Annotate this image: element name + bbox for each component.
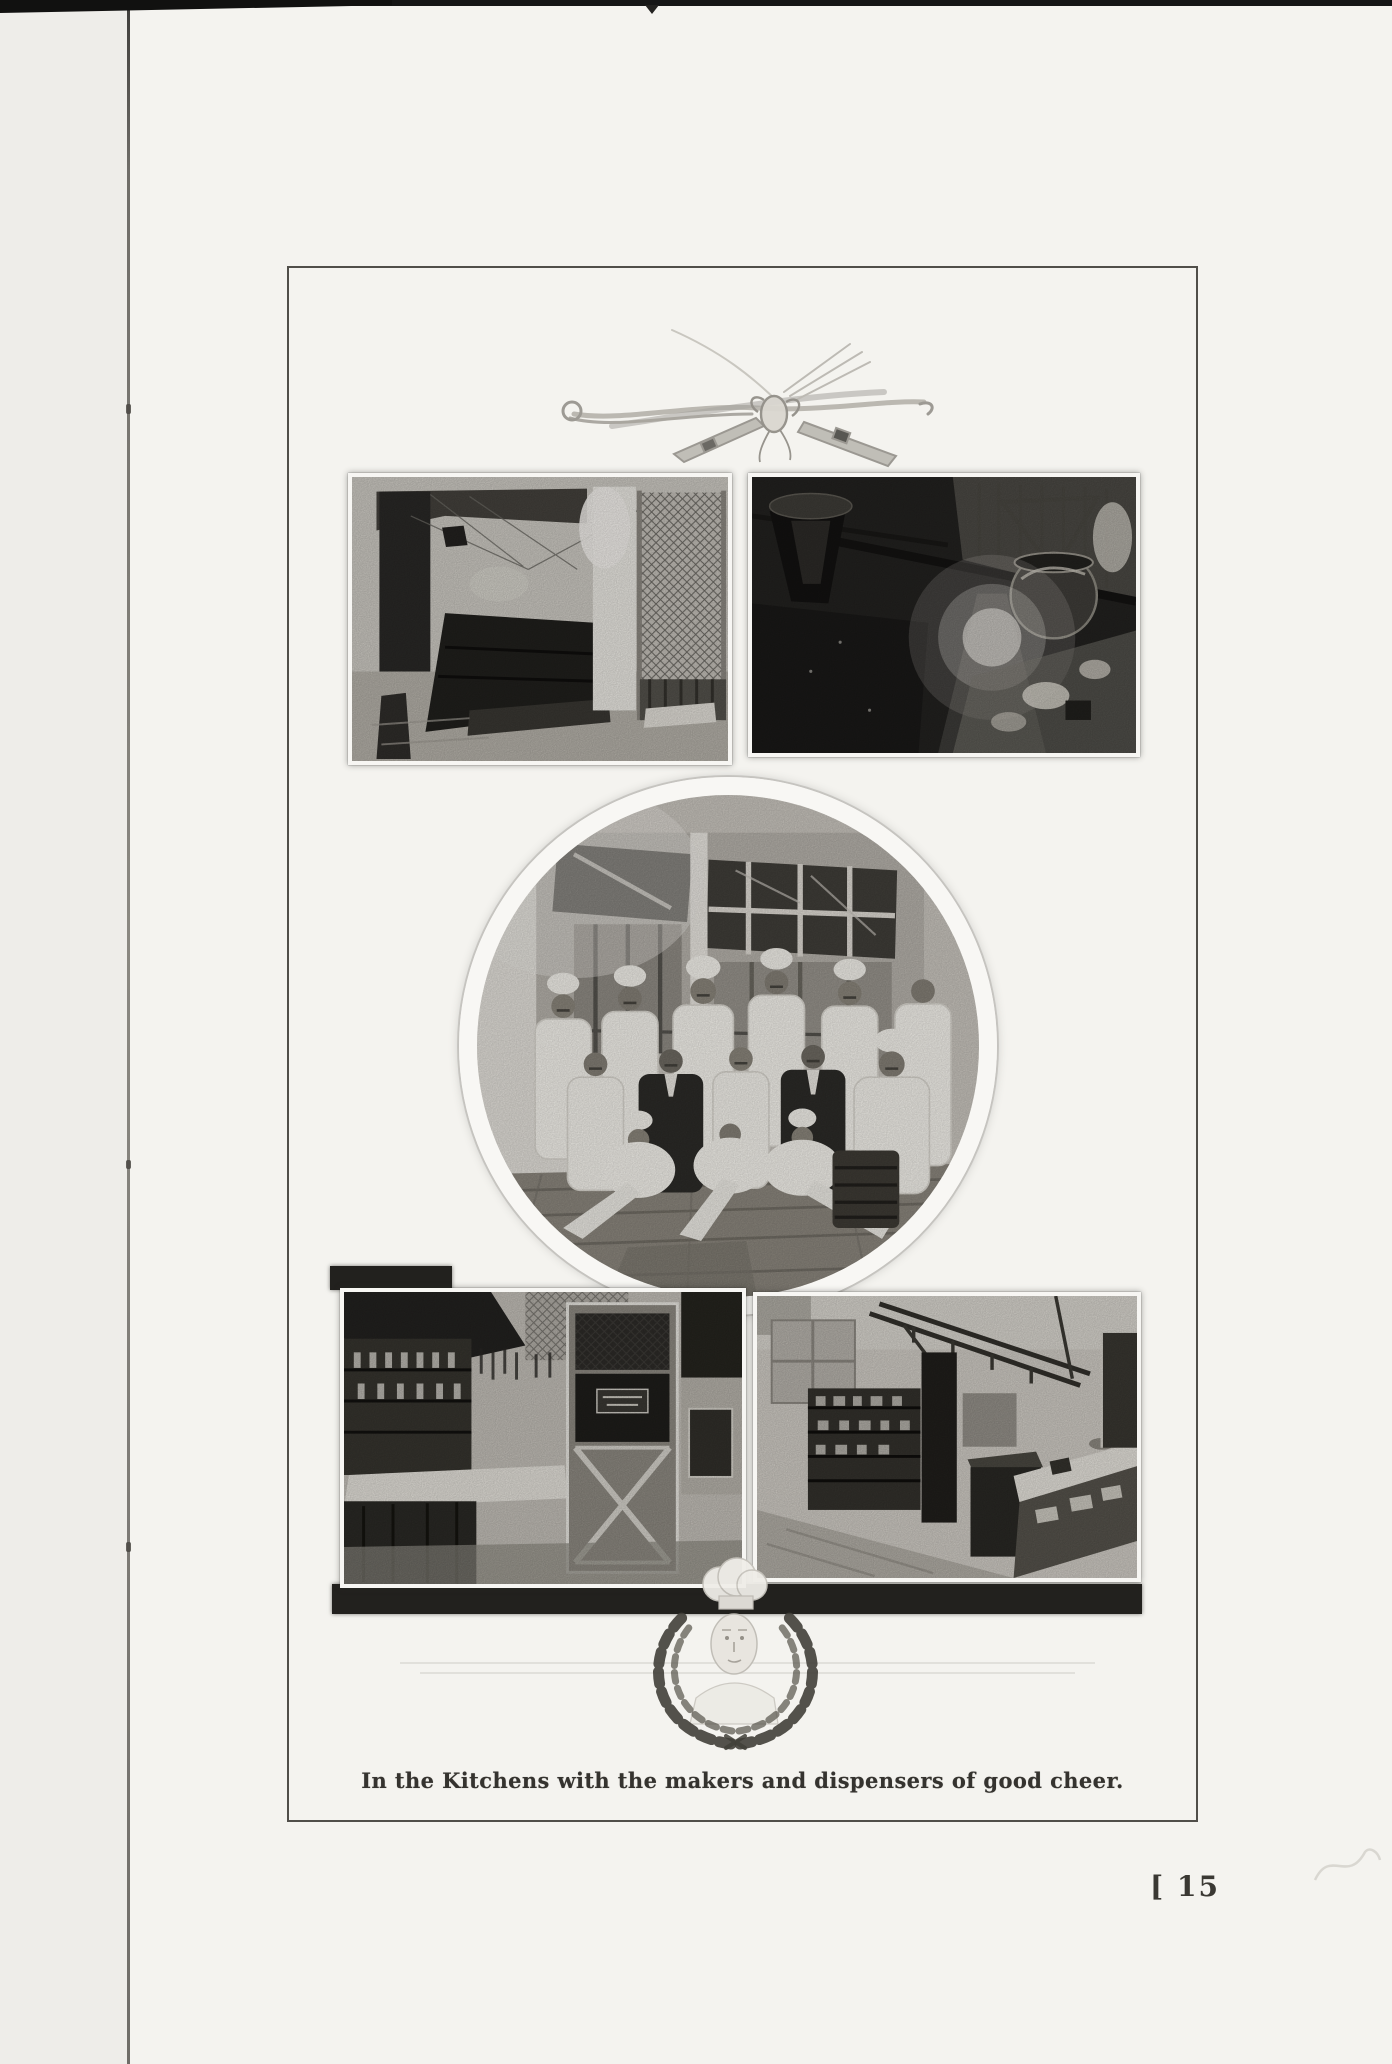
scanned-book-page: In the Kitchens with the makers and disp…: [0, 0, 1392, 2064]
scan-edge-top-left: [0, 0, 392, 13]
photo-chefs-group: [459, 777, 997, 1315]
crossed-utensils-illustration: [552, 322, 947, 472]
gutter-speck: [126, 1160, 131, 1169]
chef-wreath-emblem: [628, 1552, 843, 1760]
page-number: [ 15: [1150, 1870, 1240, 1903]
chef-portrait: [690, 1558, 778, 1724]
photo-kitchen-ranges: [748, 473, 1140, 757]
plate-mat-segment: [330, 1266, 452, 1290]
photo-lunchroom-counter: [348, 473, 732, 765]
gutter-speck: [126, 1542, 131, 1552]
gutter-speck: [126, 404, 131, 414]
plate-caption: In the Kitchens with the makers and disp…: [297, 1768, 1188, 1793]
pencil-smudge: [1310, 1838, 1385, 1888]
photo-kitchen-broiler: [340, 1288, 746, 1588]
adjacent-page-edge: [0, 0, 128, 2064]
photo-kitchen-counter: [753, 1292, 1141, 1582]
page-gutter-line: [127, 6, 130, 2064]
scan-speck: [645, 5, 659, 14]
